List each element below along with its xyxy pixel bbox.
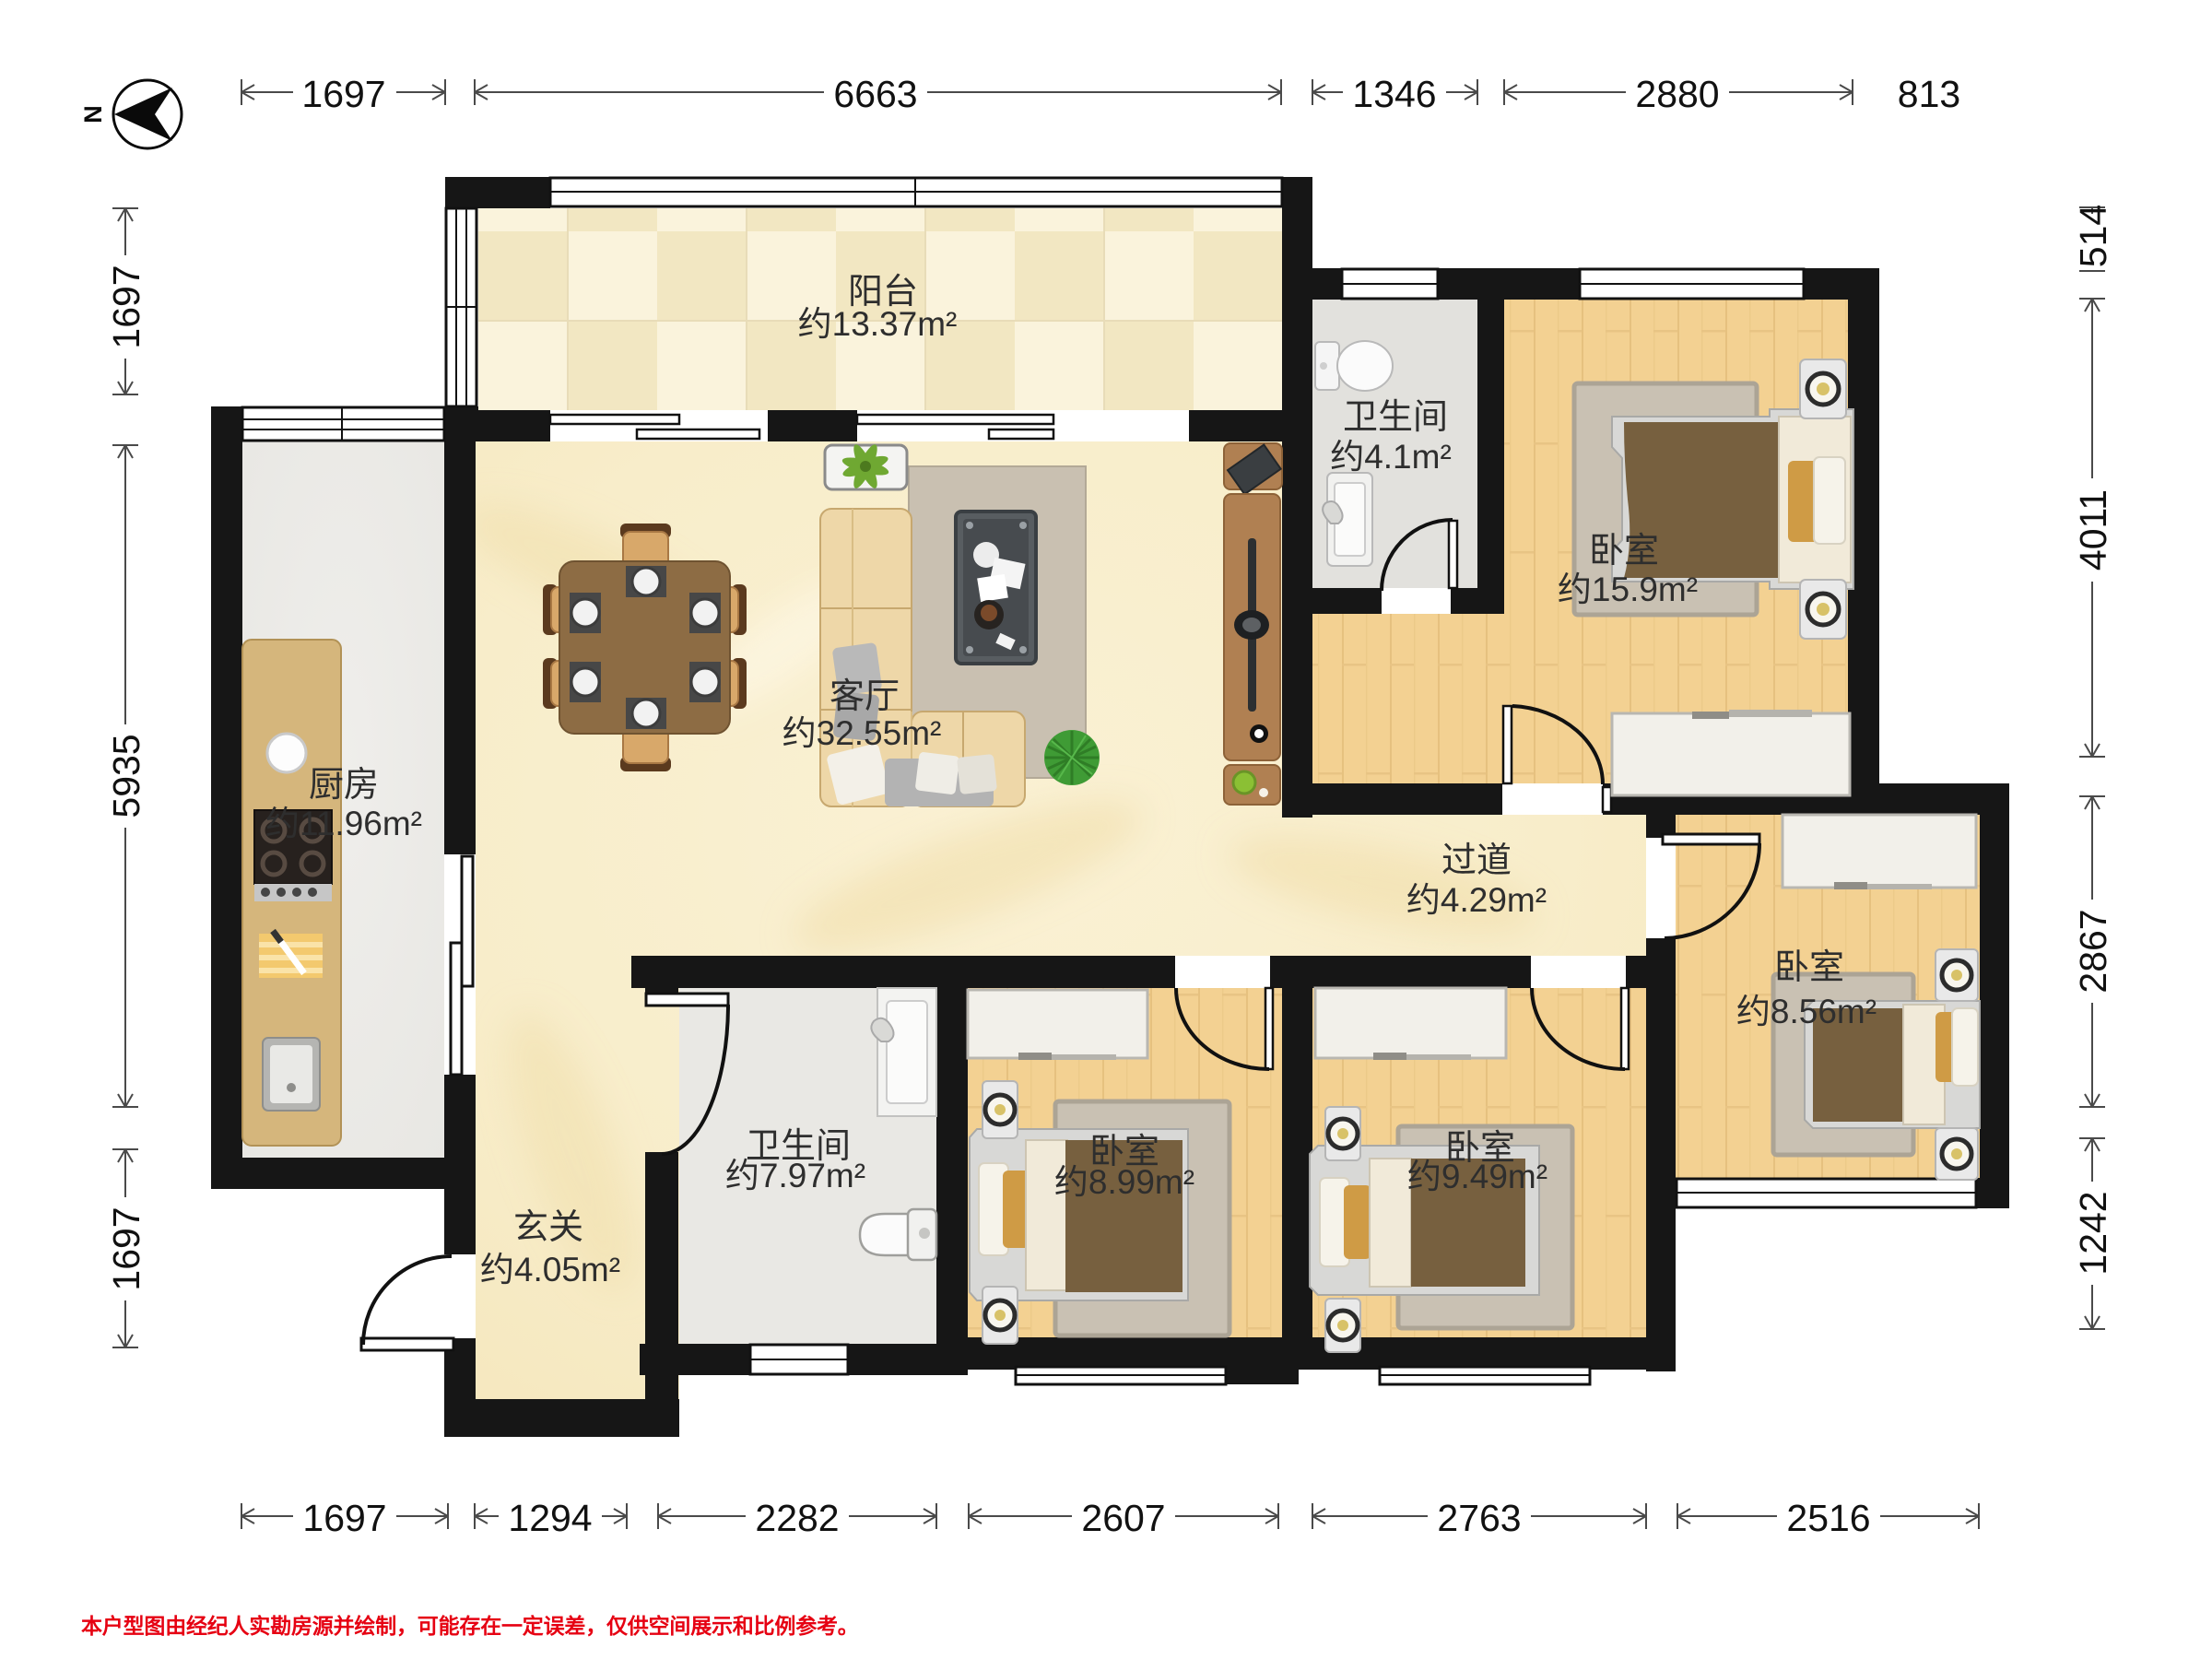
svg-text:卧室: 卧室 (1774, 948, 1844, 987)
svg-text:厨房: 厨房 (309, 766, 379, 805)
svg-text:卫生间: 卫生间 (1343, 398, 1448, 437)
svg-text:过道: 过道 (1441, 841, 1512, 880)
svg-text:514: 514 (2072, 205, 2114, 267)
svg-text:2880: 2880 (1635, 73, 1719, 115)
svg-text:约7.97m²: 约7.97m² (725, 1157, 865, 1194)
svg-text:2763: 2763 (1437, 1497, 1521, 1539)
svg-text:约4.05m²: 约4.05m² (480, 1251, 620, 1288)
svg-text:客厅: 客厅 (829, 677, 900, 716)
svg-text:本户型图由经纪人实勘房源并绘制，可能存在一定误差，仅供空间展: 本户型图由经纪人实勘房源并绘制，可能存在一定误差，仅供空间展示和比例参考。 (81, 1614, 859, 1638)
svg-text:6663: 6663 (833, 73, 917, 115)
svg-text:1697: 1697 (301, 73, 385, 115)
svg-text:玄关: 玄关 (513, 1208, 583, 1247)
svg-text:2516: 2516 (1786, 1497, 1870, 1539)
svg-text:约8.99m²: 约8.99m² (1054, 1163, 1194, 1201)
svg-text:约15.9m²: 约15.9m² (1558, 571, 1698, 608)
svg-text:约9.49m²: 约9.49m² (1407, 1158, 1547, 1195)
svg-text:N: N (79, 105, 107, 124)
svg-text:约32.55m²: 约32.55m² (782, 714, 942, 752)
svg-text:1346: 1346 (1352, 73, 1436, 115)
svg-text:约4.29m²: 约4.29m² (1406, 881, 1547, 919)
svg-text:约11.96m²: 约11.96m² (265, 805, 422, 842)
svg-text:2607: 2607 (1081, 1497, 1165, 1539)
svg-text:1697: 1697 (105, 265, 147, 348)
svg-text:约8.56m²: 约8.56m² (1736, 993, 1877, 1030)
svg-text:约4.1m²: 约4.1m² (1330, 438, 1452, 476)
svg-text:1242: 1242 (2072, 1191, 2114, 1275)
svg-text:1697: 1697 (105, 1206, 147, 1290)
svg-text:4011: 4011 (2072, 489, 2114, 571)
svg-text:约13.37m²: 约13.37m² (798, 305, 958, 343)
svg-text:5935: 5935 (105, 734, 147, 818)
svg-text:卧室: 卧室 (1589, 532, 1659, 571)
svg-text:1294: 1294 (508, 1497, 592, 1539)
svg-text:2867: 2867 (2072, 909, 2114, 993)
svg-text:2282: 2282 (755, 1497, 839, 1539)
svg-text:1697: 1697 (302, 1497, 386, 1539)
svg-text:813: 813 (1898, 73, 1960, 115)
